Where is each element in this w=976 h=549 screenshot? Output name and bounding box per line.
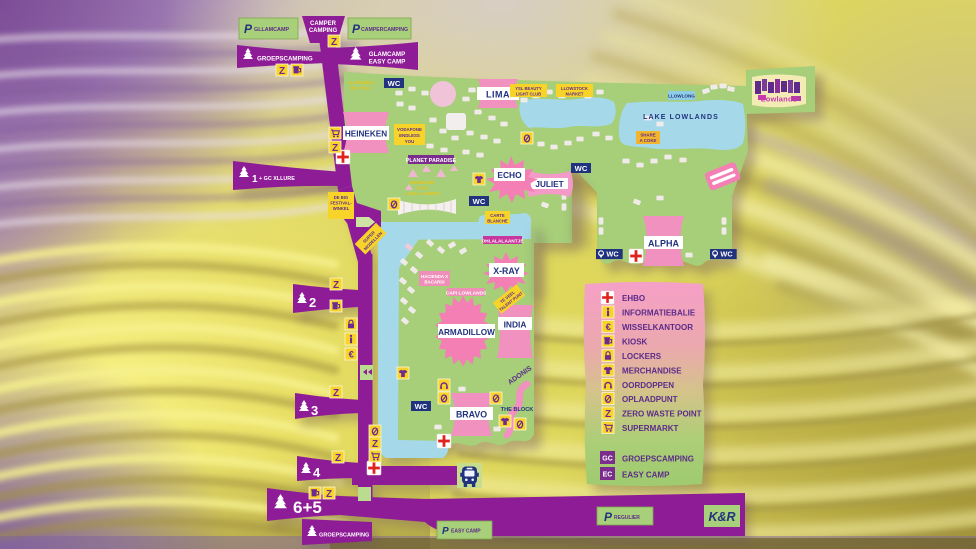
svg-text:ECHO: ECHO bbox=[497, 170, 522, 180]
svg-text:LIMA: LIMA bbox=[486, 90, 510, 100]
svg-text:P: P bbox=[244, 22, 253, 36]
svg-text:Lowlands: Lowlands bbox=[761, 95, 797, 104]
svg-text:GROEPSCAMPING: GROEPSCAMPING bbox=[257, 56, 313, 63]
svg-text:ENDLESS: ENDLESS bbox=[399, 133, 420, 138]
svg-text:P: P bbox=[604, 510, 613, 524]
svg-text:3: 3 bbox=[311, 403, 318, 418]
svg-text:EHBO: EHBO bbox=[622, 294, 645, 303]
svg-text:BLANCHE: BLANCHE bbox=[487, 218, 508, 223]
svg-text:MARKET: MARKET bbox=[566, 91, 584, 96]
svg-text:+ GC XLLURE: + GC XLLURE bbox=[259, 176, 295, 182]
svg-text:ARMADILLOW: ARMADILLOW bbox=[438, 328, 495, 337]
svg-text:EASY CAMP: EASY CAMP bbox=[622, 471, 670, 480]
svg-text:4: 4 bbox=[313, 465, 321, 480]
svg-text:OHLALALAANTJE: OHLALALAANTJE bbox=[481, 238, 524, 244]
svg-text:BRAVO: BRAVO bbox=[456, 410, 487, 420]
svg-text:PLANET PARADISE: PLANET PARADISE bbox=[406, 158, 457, 164]
svg-text:1: 1 bbox=[252, 174, 258, 185]
svg-text:LOCKERS: LOCKERS bbox=[622, 352, 662, 361]
svg-text:GROEPSCAMPING: GROEPSCAMPING bbox=[622, 455, 694, 464]
svg-text:LAKE LOWLANDS: LAKE LOWLANDS bbox=[643, 114, 719, 121]
svg-text:CARTE: CARTE bbox=[490, 213, 505, 218]
svg-text:DEL BALT: DEL BALT bbox=[350, 86, 372, 91]
svg-text:K&R: K&R bbox=[708, 510, 735, 524]
svg-text:SHARE: SHARE bbox=[640, 133, 655, 138]
svg-text:P: P bbox=[352, 22, 361, 36]
svg-text:OORDOPPEN: OORDOPPEN bbox=[622, 381, 674, 390]
svg-text:EC: EC bbox=[603, 472, 613, 479]
svg-text:EASY CAMP: EASY CAMP bbox=[451, 529, 481, 535]
svg-text:MERCHANDISE: MERCHANDISE bbox=[622, 367, 682, 376]
svg-text:CAPI LOWLANDS: CAPI LOWLANDS bbox=[446, 290, 487, 296]
svg-text:2: 2 bbox=[309, 295, 316, 310]
svg-text:YOU: YOU bbox=[405, 139, 415, 144]
svg-text:SUPERMARKT: SUPERMARKT bbox=[622, 424, 679, 433]
svg-text:X-RAY: X-RAY bbox=[493, 266, 520, 276]
svg-text:EASY CAMP: EASY CAMP bbox=[369, 59, 406, 66]
svg-text:BACARDI: BACARDI bbox=[424, 280, 444, 285]
svg-text:P: P bbox=[442, 526, 449, 537]
svg-text:HACIENDA X: HACIENDA X bbox=[421, 274, 448, 279]
svg-text:LLOWLONG: LLOWLONG bbox=[668, 94, 695, 99]
svg-text:LLOWMEGA: LLOWMEGA bbox=[348, 80, 376, 85]
svg-text:GROEPSCAMPING: GROEPSCAMPING bbox=[319, 533, 369, 539]
svg-text:LIGHT CLUB: LIGHT CLUB bbox=[516, 91, 541, 96]
svg-text:WISSELKANTOOR: WISSELKANTOOR bbox=[622, 323, 693, 332]
svg-text:6+5: 6+5 bbox=[293, 498, 322, 517]
svg-text:GC: GC bbox=[602, 456, 613, 463]
svg-text:REGULIER: REGULIER bbox=[614, 515, 640, 521]
svg-text:KIOSK: KIOSK bbox=[622, 338, 648, 347]
svg-text:OPLAADPUNT: OPLAADPUNT bbox=[622, 395, 678, 404]
svg-text:CAFE: CAFE bbox=[415, 186, 429, 192]
svg-text:FESTIVAL-: FESTIVAL- bbox=[330, 201, 352, 206]
svg-text:ALPHA: ALPHA bbox=[648, 239, 679, 249]
svg-text:CAMPERCAMPING: CAMPERCAMPING bbox=[361, 27, 408, 33]
svg-text:YSL BEAUTY: YSL BEAUTY bbox=[515, 86, 542, 91]
svg-text:DE BIG: DE BIG bbox=[334, 195, 348, 200]
svg-text:THE BLOCK: THE BLOCK bbox=[501, 407, 534, 413]
svg-text:LAGE LANDEN: LAGE LANDEN bbox=[405, 191, 440, 197]
svg-text:LLOWSTOCK: LLOWSTOCK bbox=[561, 86, 588, 91]
svg-text:INDIA: INDIA bbox=[504, 320, 527, 330]
svg-text:GLLAMCAMP: GLLAMCAMP bbox=[254, 27, 289, 33]
svg-text:HEINEKEN: HEINEKEN bbox=[345, 130, 387, 139]
svg-text:JULIET: JULIET bbox=[535, 180, 563, 189]
svg-text:WINKEL: WINKEL bbox=[333, 206, 350, 211]
svg-text:HEINEKEN: HEINEKEN bbox=[410, 180, 435, 186]
svg-text:VODAFONE: VODAFONE bbox=[397, 127, 422, 132]
svg-text:A COKE: A COKE bbox=[640, 138, 657, 143]
svg-text:CAMPING: CAMPING bbox=[309, 28, 338, 34]
svg-text:GLAMCAMP: GLAMCAMP bbox=[369, 51, 405, 58]
svg-text:ZERO WASTE POINT: ZERO WASTE POINT bbox=[622, 410, 702, 419]
svg-text:INFORMATIEBALIE: INFORMATIEBALIE bbox=[622, 309, 696, 318]
svg-text:CAMPER: CAMPER bbox=[310, 21, 337, 27]
